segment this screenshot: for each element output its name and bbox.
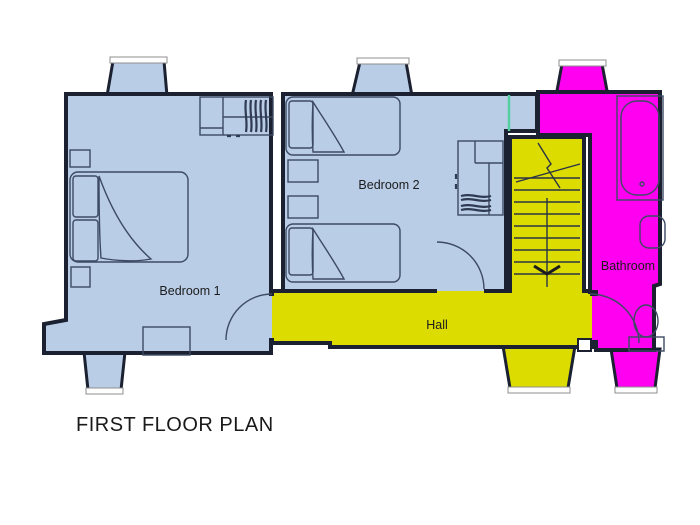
window-glass — [508, 387, 570, 393]
bay-window-hall-bottom — [503, 346, 575, 393]
window-glass — [357, 58, 409, 64]
label-bedroom1: Bedroom 1 — [159, 284, 220, 298]
bay-window-bedroom1-bottom — [84, 352, 125, 394]
floor-plan-svg: Bedroom 1 Bedroom 2 Hall Bathroom FIRST … — [0, 0, 700, 525]
opening-bedroom1-hall-side — [272, 296, 279, 338]
room-bedroom1 — [44, 94, 271, 353]
door-jamb-block — [578, 339, 591, 351]
floor-plan-canvas: Bedroom 1 Bedroom 2 Hall Bathroom FIRST … — [0, 0, 700, 525]
window-glass — [110, 57, 167, 63]
opening-bathroom-hall-side — [586, 296, 592, 340]
opening-bedroom2-hall-side — [437, 291, 484, 297]
label-bathroom: Bathroom — [601, 259, 655, 273]
room-bedroom2 — [283, 94, 537, 291]
bay-window-bedroom2-top — [352, 58, 412, 96]
label-bedroom2: Bedroom 2 — [358, 178, 419, 192]
window-glass — [615, 387, 657, 393]
opening-bedroom2 — [437, 285, 484, 291]
bay-window-bedroom1-top — [107, 57, 167, 96]
opening-bathroom — [592, 296, 599, 340]
window-glass — [86, 388, 123, 394]
opening-bedroom1 — [266, 296, 272, 338]
window-glass — [559, 60, 606, 66]
page-title: FIRST FLOOR PLAN — [76, 414, 274, 436]
bay-window-bathroom-bottom — [611, 349, 660, 393]
label-hall: Hall — [426, 318, 448, 332]
